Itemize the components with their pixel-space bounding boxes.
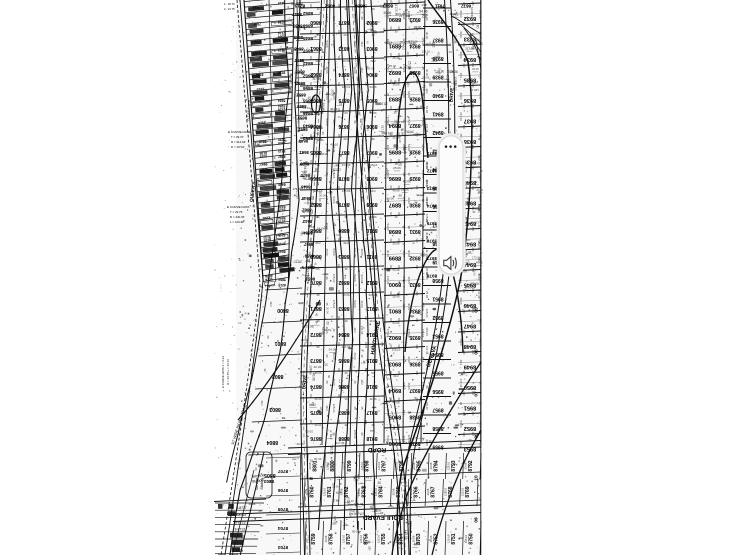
svg-text:175.06: 175.06: [421, 302, 425, 311]
svg-text:8-8713: 8-8713: [235, 528, 245, 532]
svg-text:8903: 8903: [389, 361, 401, 367]
svg-text:49.2: 49.2: [366, 476, 372, 480]
svg-text:L = 129.40': L = 129.40': [230, 220, 245, 224]
svg-text:25.06: 25.06: [408, 61, 412, 69]
svg-text:40.06: 40.06: [413, 133, 421, 137]
svg-text:8764: 8764: [379, 486, 385, 497]
svg-text:41.10: 41.10: [402, 303, 406, 310]
svg-text:30: 30: [324, 226, 328, 230]
svg-text:30: 30: [263, 368, 267, 372]
svg-text:125.10: 125.10: [293, 260, 302, 264]
svg-text:175.06: 175.06: [421, 329, 425, 338]
svg-text:8705: 8705: [277, 507, 288, 512]
svg-text:175.06: 175.06: [402, 64, 406, 73]
svg-text:41.10: 41.10: [403, 147, 407, 155]
svg-text:25.06: 25.06: [472, 67, 479, 71]
svg-text:125.10: 125.10: [470, 220, 479, 224]
svg-text:40.06: 40.06: [425, 232, 429, 239]
svg-text:8934: 8934: [463, 56, 476, 62]
svg-text:40: 40: [344, 522, 348, 526]
svg-text:60: 60: [325, 354, 329, 358]
svg-text:8057: 8057: [408, 4, 419, 9]
svg-text:49.2: 49.2: [269, 301, 273, 307]
svg-text:49.2: 49.2: [386, 145, 390, 151]
svg-text:175.06: 175.06: [469, 282, 479, 286]
svg-text:49.2: 49.2: [393, 374, 399, 378]
svg-text:41.10: 41.10: [409, 41, 416, 45]
svg-text:40.06: 40.06: [407, 383, 411, 390]
svg-text:40.06: 40.06: [315, 423, 322, 427]
svg-text:8916: 8916: [366, 383, 377, 389]
svg-text:125.10: 125.10: [359, 534, 363, 543]
svg-text:8946: 8946: [464, 302, 476, 308]
svg-text:40: 40: [365, 41, 369, 44]
svg-text:54.06: 54.06: [329, 348, 337, 352]
svg-text:40.06: 40.06: [301, 338, 308, 342]
svg-text:49.2: 49.2: [453, 13, 459, 17]
svg-text:49.2: 49.2: [360, 41, 364, 47]
svg-text:40.06: 40.06: [476, 260, 483, 264]
svg-text:30.06: 30.06: [407, 277, 411, 284]
svg-text:30: 30: [474, 180, 478, 184]
svg-text:217.36: 217.36: [305, 100, 314, 104]
svg-text:60: 60: [254, 467, 258, 471]
svg-text:25.06: 25.06: [389, 64, 396, 68]
svg-text:05: 05: [474, 307, 480, 313]
svg-text:217.36: 217.36: [386, 276, 390, 285]
svg-text:30.06: 30.06: [468, 286, 475, 290]
svg-text:06: 06: [474, 349, 480, 355]
svg-text:6215: 6215: [278, 283, 286, 287]
svg-text:217.36: 217.36: [353, 248, 357, 257]
svg-text:125.10: 125.10: [342, 85, 351, 89]
svg-text:30.06: 30.06: [360, 249, 364, 256]
svg-text:30.06: 30.06: [414, 25, 422, 29]
svg-text:30: 30: [471, 45, 475, 49]
svg-text:60: 60: [400, 477, 404, 481]
svg-text:49.2: 49.2: [332, 119, 336, 125]
svg-text:8797: 8797: [382, 460, 388, 471]
svg-text:8938: 8938: [409, 414, 420, 420]
svg-text:54.06: 54.06: [360, 145, 364, 152]
svg-text:8801: 8801: [275, 340, 287, 346]
svg-text:8661: 8661: [299, 150, 309, 155]
svg-text:8903: 8903: [366, 45, 377, 51]
svg-text:8700: 8700: [260, 154, 268, 159]
svg-text:2 - 31 75: 2 - 31 75: [224, 7, 235, 11]
svg-text:8706: 8706: [277, 488, 288, 493]
svg-text:8651: 8651: [296, 93, 306, 98]
svg-text:60: 60: [353, 198, 357, 202]
svg-text:54.06: 54.06: [425, 106, 429, 113]
svg-text:49.2: 49.2: [382, 2, 386, 8]
svg-text:25: 25: [397, 78, 401, 82]
svg-text:8799: 8799: [347, 460, 353, 471]
svg-text:30.06: 30.06: [459, 11, 463, 18]
svg-text:25: 25: [394, 215, 398, 219]
svg-text:54.06: 54.06: [325, 119, 329, 126]
svg-text:8897: 8897: [389, 202, 401, 208]
svg-text:E CURVE DATA 1 = 6.44: E CURVE DATA 1 = 6.44: [221, 356, 225, 388]
svg-text:217.36: 217.36: [360, 326, 364, 335]
svg-text:54.06: 54.06: [370, 85, 377, 89]
svg-text:30: 30: [407, 172, 411, 176]
svg-text:40.06: 40.06: [352, 530, 360, 534]
svg-text:125.10: 125.10: [422, 50, 431, 54]
svg-text:49.2: 49.2: [421, 3, 427, 7]
svg-text:175.06: 175.06: [407, 117, 411, 126]
svg-text:25.06: 25.06: [332, 484, 339, 488]
svg-text:54.06: 54.06: [321, 327, 325, 335]
svg-text:8881: 8881: [338, 253, 349, 259]
svg-text:8769: 8769: [465, 486, 471, 497]
svg-text:60: 60: [325, 276, 329, 280]
svg-text:217.36: 217.36: [459, 379, 463, 388]
svg-text:41.10: 41.10: [384, 41, 392, 45]
svg-text:8803: 8803: [263, 479, 274, 484]
svg-text:125.10: 125.10: [369, 163, 378, 167]
svg-text:25: 25: [459, 402, 463, 406]
svg-text:30.06: 30.06: [383, 11, 391, 15]
svg-text:41.10: 41.10: [314, 262, 318, 270]
svg-text:54.06: 54.06: [332, 197, 336, 204]
svg-text:8947: 8947: [464, 323, 476, 329]
svg-text:30.06: 30.06: [329, 446, 333, 454]
svg-text:8972: 8972: [426, 169, 437, 174]
svg-text:125.10: 125.10: [307, 534, 311, 543]
svg-text:8957: 8957: [432, 407, 443, 413]
svg-text:8859: 8859: [354, 4, 365, 9]
svg-text:60: 60: [464, 269, 468, 273]
svg-text:8905: 8905: [366, 97, 377, 103]
svg-text:Station: Station: [260, 478, 264, 489]
svg-text:125.10: 125.10: [446, 461, 450, 470]
svg-text:25.06: 25.06: [401, 187, 409, 191]
svg-text:30: 30: [402, 331, 406, 335]
svg-text:30.06: 30.06: [407, 250, 411, 257]
svg-text:175.06: 175.06: [472, 256, 481, 260]
svg-text:25.06: 25.06: [425, 291, 429, 298]
svg-text:30: 30: [371, 423, 375, 427]
svg-text:40: 40: [306, 85, 310, 89]
svg-text:30.06: 30.06: [319, 194, 327, 198]
svg-text:25: 25: [299, 233, 303, 236]
svg-text:8942: 8942: [432, 129, 443, 135]
svg-text:60: 60: [336, 491, 340, 495]
svg-text:54.06: 54.06: [307, 173, 311, 180]
svg-text:40: 40: [344, 371, 348, 375]
svg-text:125.10: 125.10: [302, 210, 312, 214]
svg-text:25.06: 25.06: [353, 353, 357, 360]
svg-text:8936: 8936: [464, 97, 476, 103]
svg-text:30.06: 30.06: [459, 52, 463, 59]
svg-text:125.10: 125.10: [470, 88, 479, 92]
svg-text:125.10: 125.10: [425, 196, 429, 205]
svg-text:49.2: 49.2: [315, 59, 321, 63]
svg-text:25: 25: [325, 302, 329, 306]
svg-text:30: 30: [405, 8, 408, 12]
svg-text:40.06: 40.06: [311, 373, 315, 381]
svg-text:175.06: 175.06: [421, 37, 425, 46]
svg-text:175.06: 175.06: [402, 196, 406, 205]
svg-text:49.2: 49.2: [402, 410, 406, 416]
svg-text:30.06: 30.06: [314, 457, 322, 461]
svg-text:125.10: 125.10: [461, 487, 465, 496]
svg-text:125.10: 125.10: [377, 461, 381, 470]
svg-text:217.36: 217.36: [306, 269, 310, 279]
svg-text:40: 40: [425, 422, 429, 426]
svg-text:1 - 30 70: 1 - 30 70: [224, 2, 235, 6]
svg-text:30.06: 30.06: [392, 488, 396, 495]
svg-text:40.06: 40.06: [307, 96, 315, 100]
svg-text:49.2: 49.2: [459, 73, 463, 79]
svg-text:8929: 8929: [409, 175, 420, 181]
svg-text:8757: 8757: [346, 533, 352, 544]
svg-text:30.06: 30.06: [326, 307, 330, 315]
svg-text:60: 60: [412, 497, 416, 501]
svg-text:25: 25: [468, 250, 472, 254]
svg-text:8754: 8754: [399, 533, 405, 544]
svg-text:8648: 8648: [294, 47, 304, 52]
svg-text:25: 25: [266, 335, 270, 339]
svg-text:217.36: 217.36: [381, 125, 385, 135]
svg-text:8767: 8767: [431, 486, 437, 497]
svg-text:49.2: 49.2: [417, 539, 421, 545]
svg-text:40.06: 40.06: [330, 107, 338, 111]
svg-text:30.06: 30.06: [308, 462, 312, 469]
svg-text:8937: 8937: [464, 118, 476, 124]
svg-text:8971: 8971: [426, 151, 437, 156]
svg-text:09: 09: [474, 517, 480, 523]
svg-text:175.06: 175.06: [335, 475, 345, 479]
svg-text:8949: 8949: [464, 364, 476, 370]
svg-text:40: 40: [332, 328, 336, 332]
svg-text:8904: 8904: [366, 71, 377, 77]
svg-text:125.10: 125.10: [435, 70, 444, 74]
svg-text:8792: 8792: [468, 460, 474, 471]
svg-text:8931: 8931: [409, 228, 420, 234]
svg-text:60: 60: [475, 25, 479, 29]
svg-text:217.36: 217.36: [469, 80, 478, 84]
svg-text:40.06: 40.06: [403, 179, 411, 183]
svg-text:40.06: 40.06: [459, 93, 463, 100]
svg-text:49.2: 49.2: [446, 74, 450, 81]
svg-text:25: 25: [258, 509, 262, 513]
svg-text:30: 30: [393, 111, 397, 115]
svg-text:30: 30: [324, 363, 328, 367]
svg-text:40: 40: [344, 319, 348, 323]
svg-text:30.06: 30.06: [313, 365, 321, 369]
svg-text:8759: 8759: [311, 533, 317, 544]
svg-text:30: 30: [466, 79, 470, 83]
svg-text:30.06: 30.06: [386, 250, 390, 257]
svg-text:40: 40: [327, 375, 331, 379]
svg-text:30.06: 30.06: [422, 76, 429, 80]
svg-text:25.06: 25.06: [305, 324, 313, 328]
svg-text:30: 30: [478, 272, 482, 276]
svg-text:49.2: 49.2: [315, 241, 321, 245]
svg-text:25: 25: [386, 93, 390, 97]
svg-text:R = 440.36': R = 440.36': [230, 215, 245, 219]
svg-text:41.10: 41.10: [421, 144, 425, 151]
svg-text:30: 30: [382, 28, 386, 32]
svg-text:25: 25: [325, 380, 329, 384]
svg-text:30.06: 30.06: [412, 462, 416, 469]
svg-text:90: 90: [474, 433, 480, 439]
svg-text:8956: 8956: [432, 388, 443, 394]
svg-text:175.06: 175.06: [425, 214, 429, 223]
svg-text:30: 30: [344, 397, 348, 401]
svg-text:8793: 8793: [451, 460, 457, 471]
svg-text:8750: 8750: [469, 533, 475, 544]
svg-text:25: 25: [316, 182, 320, 186]
svg-text:54.06: 54.06: [303, 166, 307, 174]
svg-text:125.10: 125.10: [332, 168, 341, 172]
svg-text:30.06: 30.06: [363, 540, 371, 544]
svg-text:125.10: 125.10: [360, 461, 364, 470]
svg-text:41.10: 41.10: [329, 186, 333, 194]
svg-text:25: 25: [316, 293, 320, 297]
svg-text:8758: 8758: [329, 533, 335, 544]
svg-text:41.10: 41.10: [407, 197, 411, 204]
svg-text:54.06: 54.06: [320, 106, 324, 114]
svg-text:40.06: 40.06: [425, 180, 429, 187]
svg-text:30.06: 30.06: [340, 488, 344, 495]
svg-text:125.10: 125.10: [377, 534, 381, 543]
svg-text:25.06: 25.06: [315, 397, 322, 401]
svg-text:25: 25: [421, 437, 425, 441]
svg-text:T = 39.70': T = 39.70': [231, 135, 244, 139]
svg-text:8345: 8345: [278, 141, 286, 146]
svg-text:30.06: 30.06: [412, 535, 416, 542]
svg-text:8951: 8951: [432, 296, 443, 302]
svg-text:54.06: 54.06: [425, 145, 429, 152]
svg-text:125.10: 125.10: [392, 42, 401, 46]
svg-text:49.2: 49.2: [343, 241, 349, 245]
svg-text:8873: 8873: [310, 357, 322, 363]
svg-text:30: 30: [398, 163, 402, 167]
svg-text:54.06: 54.06: [470, 7, 474, 14]
svg-text:8901: 8901: [389, 308, 401, 314]
svg-text:125.10: 125.10: [395, 461, 399, 470]
svg-text:30: 30: [344, 267, 348, 271]
svg-text:30: 30: [316, 7, 320, 11]
svg-text:40: 40: [360, 16, 364, 20]
svg-text:41.10: 41.10: [402, 250, 406, 257]
svg-text:49.2: 49.2: [329, 434, 333, 440]
svg-text:25: 25: [335, 163, 338, 167]
svg-text:40: 40: [428, 439, 432, 443]
svg-text:30.06: 30.06: [429, 462, 433, 469]
svg-text:8951: 8951: [464, 405, 476, 411]
svg-text:40.06: 40.06: [301, 380, 308, 384]
svg-text:49.2: 49.2: [404, 481, 408, 487]
svg-text:41.10: 41.10: [407, 356, 411, 363]
svg-text:125.10: 125.10: [322, 487, 326, 496]
svg-text:30.06: 30.06: [297, 442, 304, 446]
svg-text:125.10: 125.10: [447, 534, 451, 543]
svg-text:8677: 8677: [460, 4, 471, 9]
svg-text:30.06: 30.06: [306, 197, 310, 205]
svg-text:8976: 8976: [426, 239, 437, 244]
svg-text:30: 30: [377, 481, 381, 485]
svg-text:8918: 8918: [366, 435, 377, 441]
svg-text:125.10: 125.10: [332, 404, 336, 413]
svg-text:8874: 8874: [310, 383, 322, 389]
svg-text:60: 60: [325, 322, 329, 326]
svg-text:60: 60: [315, 168, 319, 172]
svg-text:49.2: 49.2: [436, 52, 440, 58]
svg-text:8798: 8798: [364, 460, 370, 471]
svg-text:8977: 8977: [426, 256, 437, 261]
svg-text:8879: 8879: [338, 201, 349, 207]
svg-text:8876: 8876: [310, 435, 322, 441]
svg-text:49.2: 49.2: [353, 327, 357, 333]
svg-text:8-8717: 8-8717: [236, 506, 246, 510]
svg-text:30.06: 30.06: [370, 397, 377, 401]
svg-text:125.10: 125.10: [425, 266, 429, 275]
svg-text:60: 60: [344, 111, 348, 115]
svg-text:30: 30: [449, 50, 453, 54]
svg-text:8766: 8766: [413, 486, 419, 497]
svg-text:8703: 8703: [277, 545, 288, 550]
svg-text:40.06: 40.06: [315, 85, 322, 89]
svg-text:60: 60: [353, 120, 357, 124]
svg-text:8659: 8659: [304, 254, 314, 259]
svg-text:30: 30: [421, 199, 425, 203]
svg-text:25: 25: [339, 101, 343, 105]
svg-text:54.06: 54.06: [353, 301, 357, 308]
svg-text:30.06: 30.06: [360, 301, 364, 308]
svg-text:175.06: 175.06: [416, 193, 425, 197]
svg-text:R = 43.75 L = 13.73: R = 43.75 L = 13.73: [226, 359, 230, 385]
svg-text:8952: 8952: [464, 425, 476, 431]
svg-text:217.36: 217.36: [336, 441, 345, 445]
svg-text:30.06: 30.06: [343, 59, 350, 63]
svg-text:41.10: 41.10: [330, 142, 338, 146]
svg-text:8707: 8707: [277, 469, 288, 474]
svg-text:8704: 8704: [277, 526, 288, 531]
svg-text:8893: 8893: [389, 96, 401, 102]
svg-text:49.2: 49.2: [260, 400, 264, 406]
svg-text:R = 314.93': R = 314.93': [231, 140, 246, 144]
svg-text:60: 60: [438, 505, 442, 509]
svg-text:60: 60: [399, 193, 403, 197]
svg-text:8-8713: 8-8713: [236, 513, 246, 517]
svg-text:30.06: 30.06: [459, 298, 463, 305]
svg-text:30: 30: [306, 259, 310, 263]
svg-text:8886: 8886: [338, 383, 349, 389]
svg-text:41.10: 41.10: [459, 31, 463, 38]
svg-text:49.2: 49.2: [325, 405, 329, 411]
svg-text:30: 30: [318, 198, 322, 201]
svg-text:07: 07: [474, 391, 480, 397]
svg-text:25: 25: [393, 120, 397, 124]
svg-text:8872: 8872: [310, 331, 322, 337]
svg-text:175.06: 175.06: [404, 530, 408, 540]
svg-text:49.2: 49.2: [333, 499, 339, 503]
svg-text:60: 60: [366, 66, 370, 70]
svg-text:8052: 8052: [324, 4, 335, 9]
svg-text:30: 30: [327, 100, 331, 104]
svg-text:30: 30: [310, 242, 314, 246]
svg-text:60: 60: [468, 438, 472, 442]
svg-text:125.10: 125.10: [402, 355, 406, 364]
svg-text:30.06: 30.06: [429, 535, 433, 542]
svg-text:175.06: 175.06: [348, 508, 352, 517]
svg-text:125.10: 125.10: [421, 170, 425, 179]
svg-text:8940: 8940: [432, 92, 443, 98]
